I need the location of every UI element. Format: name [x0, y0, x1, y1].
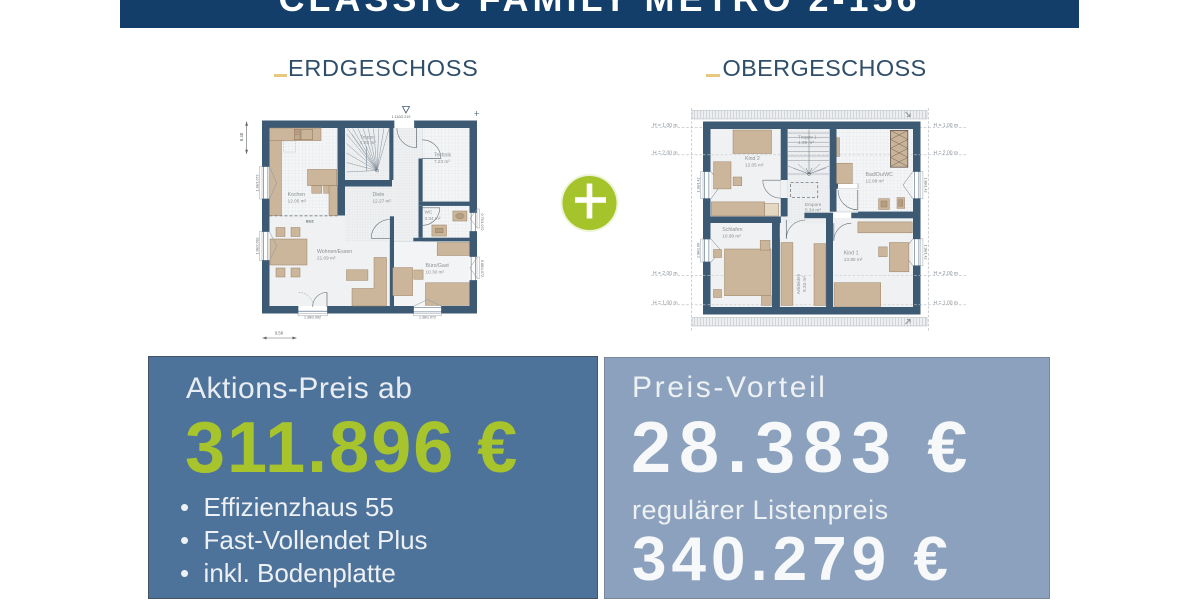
svg-text:9.33 m²: 9.33 m²	[802, 276, 807, 292]
svg-text:H = 2.00 m: H = 2.00 m	[653, 271, 678, 277]
svg-text:1.38/1.42: 1.38/1.42	[697, 178, 701, 193]
svg-text:Bad/Du/WC: Bad/Du/WC	[866, 172, 894, 178]
svg-text:1.93 m²: 1.93 m²	[360, 140, 376, 145]
svg-text:0.86/1.072: 0.86/1.072	[480, 260, 484, 277]
svg-text:13.80 m²: 13.80 m²	[844, 257, 863, 262]
svg-text:4.39 m²: 4.39 m²	[798, 140, 814, 145]
svg-text:0.75/1.072: 0.75/1.072	[480, 214, 484, 231]
svg-text:H = 1.00 m: H = 1.00 m	[653, 300, 678, 306]
svg-text:H = 1.00 m: H = 1.00 m	[934, 300, 959, 306]
svg-text:Schlafen: Schlafen	[722, 227, 742, 233]
svg-text:WC: WC	[425, 210, 433, 215]
svg-text:5.34 m²: 5.34 m²	[805, 208, 821, 213]
svg-text:3.34 m²: 3.34 m²	[425, 216, 441, 221]
svg-text:Treppe: Treppe	[360, 135, 375, 140]
svg-text:1.38/2.092: 1.38/2.092	[304, 316, 321, 320]
svg-text:1.110/2.219: 1.110/2.219	[392, 115, 411, 119]
svg-text:9.58: 9.58	[275, 331, 284, 336]
svg-text:1.38/1.42: 1.38/1.42	[924, 245, 928, 260]
svg-text:10.30 m²: 10.30 m²	[426, 269, 445, 274]
svg-text:10.99 m²: 10.99 m²	[722, 233, 741, 238]
svg-text:Ankleiden: Ankleiden	[796, 273, 801, 294]
svg-text:Kochen: Kochen	[288, 192, 306, 198]
svg-text:Kind 2: Kind 2	[745, 156, 760, 162]
svg-text:BUZ: BUZ	[306, 220, 314, 224]
svg-text:H = 2.00 m: H = 2.00 m	[934, 271, 959, 277]
svg-text:1.38/1.072: 1.38/1.072	[419, 316, 436, 320]
svg-text:H = 2.00 m: H = 2.00 m	[934, 150, 959, 156]
svg-text:Technik: Technik	[434, 153, 451, 159]
svg-text:H = 2.00 m: H = 2.00 m	[653, 150, 678, 156]
svg-text:Treppe 1: Treppe 1	[798, 135, 817, 140]
svg-text:8.48: 8.48	[239, 132, 244, 141]
svg-text:12.05 m²: 12.05 m²	[745, 162, 764, 167]
svg-text:12.27 m²: 12.27 m²	[373, 198, 392, 203]
svg-text:Kind 1: Kind 1	[844, 251, 859, 257]
svg-text:12.05 m²: 12.05 m²	[288, 198, 307, 203]
svg-text:21.09 m²: 21.09 m²	[317, 255, 336, 260]
svg-text:1.38/1.072: 1.38/1.072	[256, 175, 260, 192]
svg-text:1.98/2.092: 1.98/2.092	[256, 238, 260, 255]
svg-text:1.98/2.09: 1.98/2.09	[697, 243, 701, 258]
svg-text:7.23 m²: 7.23 m²	[434, 159, 450, 164]
svg-text:Wohnen/Essen: Wohnen/Essen	[317, 249, 352, 255]
svg-text:12.08 m²: 12.08 m²	[866, 178, 885, 183]
svg-text:1.88/1.42: 1.88/1.42	[924, 178, 928, 193]
svg-text:Empore: Empore	[805, 202, 822, 207]
svg-text:H = 1.00 m: H = 1.00 m	[653, 123, 678, 129]
svg-text:H = 1.00 m: H = 1.00 m	[934, 123, 959, 129]
svg-text:Diele: Diele	[373, 192, 385, 198]
svg-text:Büro/Gast: Büro/Gast	[426, 263, 450, 269]
